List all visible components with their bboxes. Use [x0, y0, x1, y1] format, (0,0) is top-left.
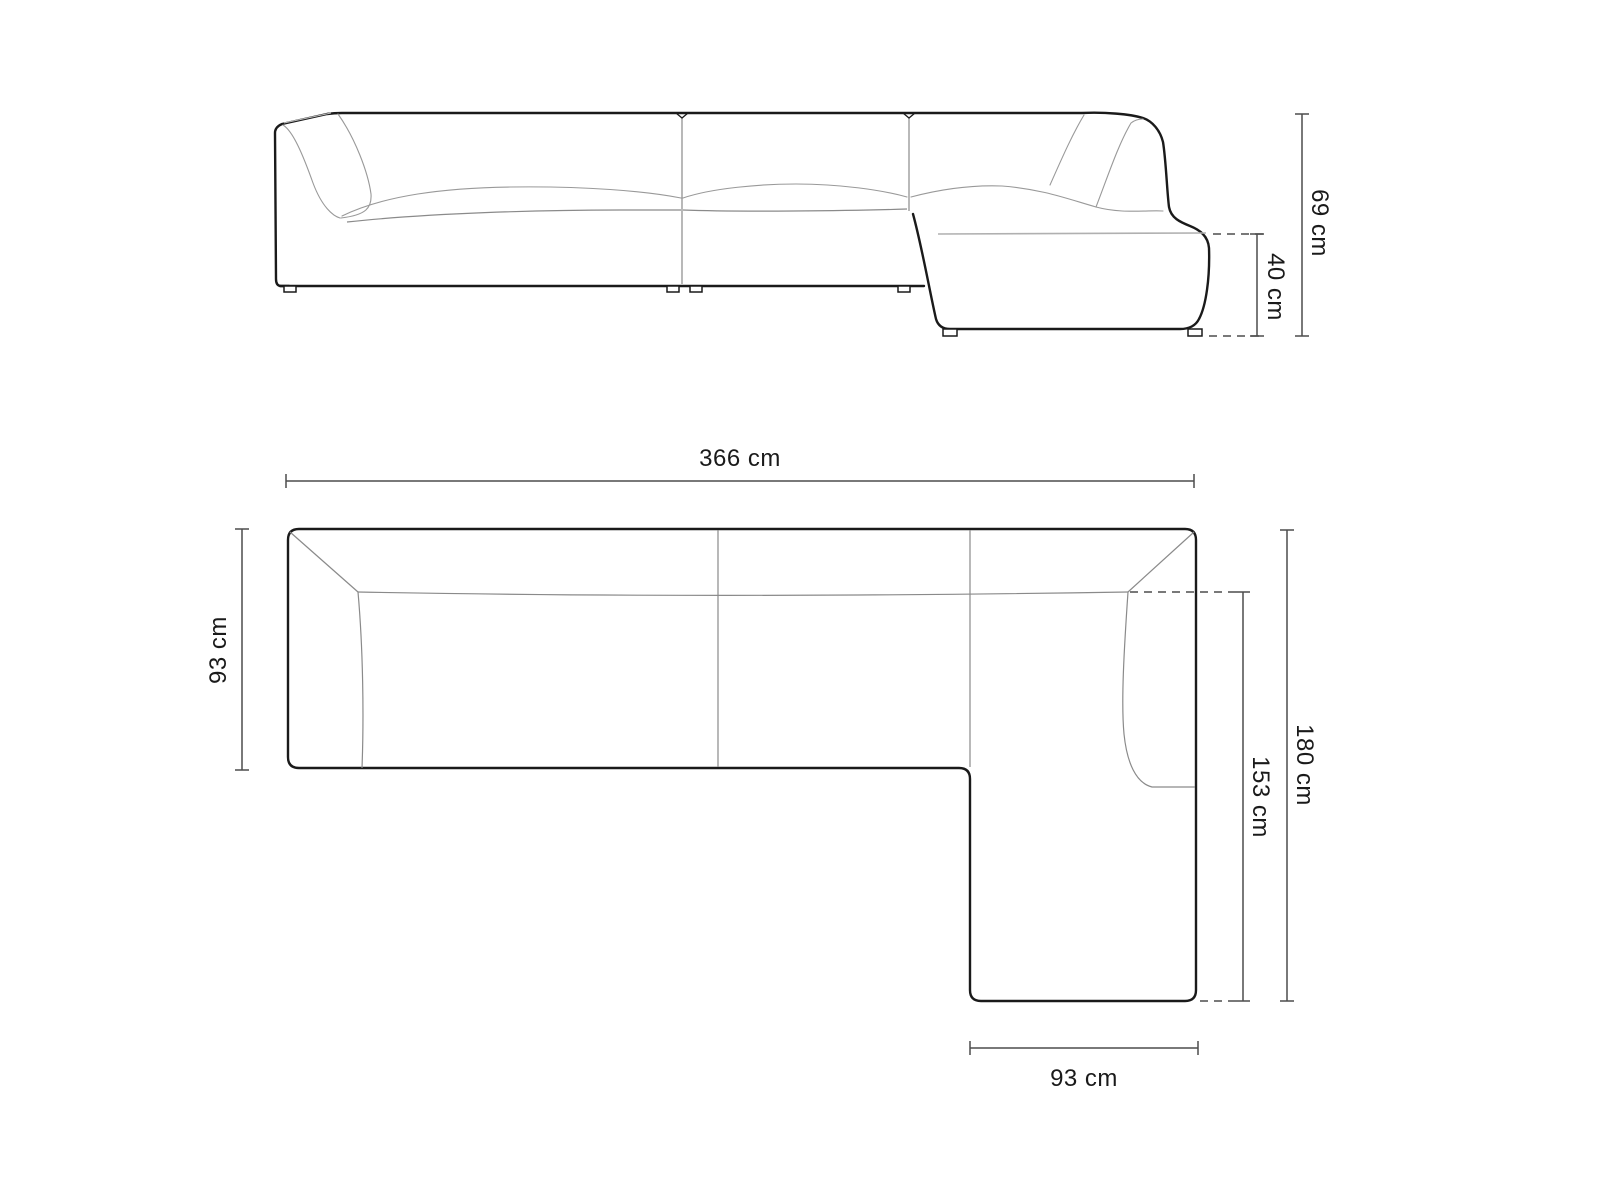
chaise-seat-top-edge [938, 233, 1206, 234]
left-arm-front-curve [338, 114, 371, 218]
seat-line-1 [347, 210, 681, 222]
left-arm-edge-curve [283, 125, 340, 218]
chaise-width-dimension-line [970, 1041, 1198, 1055]
chaise-length-dimension: 153 cm [1130, 592, 1274, 1001]
total-width-dimension: 366 cm [286, 445, 1194, 488]
sofa-depth-dimension: 93 cm [205, 529, 249, 770]
corner-cushion-seam-1 [1050, 115, 1084, 185]
chaise-width-dimension-label: 93 cm [1050, 1065, 1118, 1092]
right-arm-inner-curves [1050, 115, 1143, 207]
total-height-dimension-label: 69 cm [1306, 189, 1333, 257]
plan-back-cushion-line [358, 592, 1128, 595]
sofa-front-outline [275, 113, 1209, 329]
total-depth-dimension-label: 180 cm [1291, 724, 1318, 806]
chaise-width-dimension: 93 cm [970, 1041, 1198, 1092]
foot [943, 329, 957, 336]
plan-corner-diagonal-left [290, 532, 358, 592]
foot [690, 286, 702, 292]
diagram-canvas: 40 cm 69 cm [0, 0, 1600, 1200]
sofa-depth-dimension-line [235, 529, 249, 770]
total-depth-dimension: 180 cm [1280, 530, 1318, 1001]
total-height-dimension: 69 cm [1295, 114, 1333, 336]
plan-left-cushion-curve [358, 592, 363, 768]
corner-cushion-seam-2 [1096, 119, 1143, 207]
foot [667, 286, 679, 292]
foot [898, 286, 910, 292]
seat-height-dimension-label: 40 cm [1262, 253, 1289, 321]
chaise-length-dimension-label: 153 cm [1247, 756, 1274, 838]
cushion-arc-2 [683, 184, 907, 198]
sofa-plan-drawing [288, 529, 1196, 1001]
sofa-front-drawing [275, 113, 1209, 336]
plan-chaise-cushion-curve [1123, 592, 1195, 787]
seat-base-lines [347, 209, 907, 222]
sofa-dimension-diagram: 40 cm 69 cm [0, 0, 1600, 1200]
foot [1188, 329, 1202, 336]
sofa-depth-dimension-label: 93 cm [205, 616, 232, 684]
cushion-arc-3 [911, 186, 1163, 211]
seat-line-2 [683, 209, 907, 211]
top-plan-view: 366 cm 93 cm 153 cm 180 cm [205, 445, 1318, 1092]
total-width-dimension-label: 366 cm [699, 445, 781, 472]
foot [284, 286, 296, 292]
backrest-top-inner-line [284, 113, 331, 123]
left-arm-inner-curves [283, 114, 371, 218]
front-elevation-view: 40 cm 69 cm [275, 113, 1333, 336]
plan-corner-diagonal-right [1128, 532, 1194, 592]
sofa-plan-outline [288, 529, 1196, 1001]
seat-height-dimension: 40 cm [1209, 234, 1289, 336]
seat-height-dimension-line [1250, 234, 1264, 336]
total-width-dimension-line [286, 474, 1194, 488]
